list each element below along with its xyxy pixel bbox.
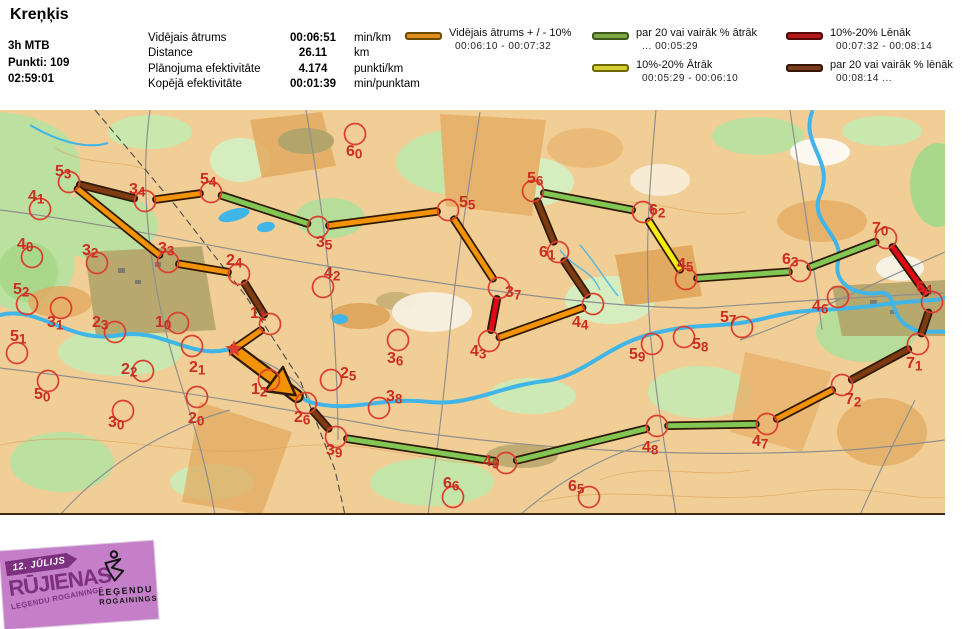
route-map-svg: 5341345433244032523123105121225030201211…: [0, 110, 945, 513]
control-number: 55: [459, 194, 476, 213]
stats-table: Vidējais ātrums 00:06:51 min/km Distance…: [148, 30, 420, 92]
legend-swatch-slow10: [786, 32, 823, 40]
control-number: 71: [906, 355, 923, 374]
control-number: 53: [55, 163, 72, 182]
control-number: 11: [250, 305, 267, 324]
control-number: 39: [326, 442, 342, 461]
total-time: 02:59:01: [8, 71, 69, 88]
legend-range: 00:07:32 - 00:08:14: [830, 40, 932, 53]
stat-unit: punkti/km: [346, 63, 403, 75]
stat-value: 26.11: [280, 47, 346, 59]
stat-row: Plānojuma efektivitāte 4.174 punkti/km: [148, 61, 420, 77]
stat-value: 00:06:51: [280, 32, 346, 44]
route-map: 5341345433244032523123105121225030201211…: [0, 110, 945, 515]
participant-info: 3h MTB Punkti: 109 02:59:01: [8, 38, 69, 88]
stat-row: Vidējais ātrums 00:06:51 min/km: [148, 30, 420, 46]
stat-label: Vidējais ātrums: [148, 32, 280, 44]
stat-row: Distance 26.11 km: [148, 46, 420, 62]
stat-unit: km: [346, 47, 369, 59]
legend-label: Vidējais ātrums + / - 10%: [449, 27, 571, 39]
control-number: 60: [346, 143, 362, 162]
points-total: Punkti: 109: [8, 55, 69, 72]
control-number: 33: [158, 240, 175, 259]
legend-label: 10%-20% Ātrāk: [636, 59, 712, 71]
legend-item-fast10: 10%-20% Ātrāk 00:05:29 - 00:06:10: [592, 59, 738, 85]
control-number: 12: [251, 381, 267, 400]
control-number: 66: [443, 475, 460, 494]
control-number: 22: [121, 361, 137, 380]
control-number: 49: [483, 453, 499, 472]
legend-swatch-slow20: [786, 64, 823, 72]
stat-unit: min/km: [346, 32, 391, 44]
control-number: 30: [108, 414, 124, 433]
stat-label: Plānojuma efektivitāte: [148, 63, 280, 75]
stat-label: Distance: [148, 47, 280, 59]
control-number: 46: [812, 298, 829, 317]
control-number: 52: [13, 281, 29, 300]
control-number: 45: [677, 256, 694, 275]
control-number: 41: [28, 188, 45, 207]
legend-item-slow20: par 20 vai vairāk % lēnāk 00:08:14 ...: [786, 59, 953, 85]
control-number: 63: [782, 251, 799, 270]
legend-label: 10%-20% Lēnāk: [830, 27, 911, 39]
control-number: 34: [129, 181, 146, 200]
legend-range: 00:05:29 - 00:06:10: [636, 72, 738, 85]
event-logo: 12. JŪLIJS RŪJIENAS LEĢENDU ROGAININGS L…: [0, 541, 159, 629]
map-decor: [0, 110, 945, 513]
control-number: 70: [872, 220, 888, 239]
stat-value: 00:01:39: [280, 78, 346, 90]
control-number: 57: [720, 309, 736, 328]
stat-value: 4.174: [280, 63, 346, 75]
control-number: 51: [10, 328, 27, 347]
control-number: 56: [527, 170, 544, 189]
page-title: Kreņķis: [10, 6, 69, 24]
legend-range: 00:06:10 - 00:07:32: [449, 40, 571, 53]
control-number: 47: [752, 433, 768, 452]
control-number: 65: [568, 478, 585, 497]
control-number: 24: [226, 252, 243, 271]
control-number: 21: [189, 359, 206, 378]
control-number: 23: [92, 314, 109, 333]
class-name: 3h MTB: [8, 38, 69, 55]
control-number: 37: [505, 284, 521, 303]
legend-item-average: Vidējais ātrums + / - 10% 00:06:10 - 00:…: [405, 27, 571, 53]
event-brand: LEĢENDU ROGAININGS: [96, 547, 154, 607]
legend-label: par 20 vai vairāk % lēnāk: [830, 59, 953, 71]
control-number: 40: [17, 236, 33, 255]
legend-swatch-fast20: [592, 32, 629, 40]
stat-label: Kopējā efektivitāte: [148, 78, 280, 90]
control-number: 42: [324, 265, 340, 284]
control-number: 35: [316, 234, 333, 253]
control-number: 43: [470, 343, 487, 362]
control-number: 32: [82, 242, 98, 261]
stat-row: Kopējā efektivitāte 00:01:39 min/punktam: [148, 77, 420, 93]
legend-item-slow10: 10%-20% Lēnāk 00:07:32 - 00:08:14: [786, 27, 932, 53]
event-logo-left: 12. JŪLIJS RŪJIENAS LEĢENDU ROGAININGS: [4, 545, 106, 609]
control-number: 58: [692, 336, 709, 355]
control-number: 54: [200, 171, 217, 190]
legend-swatch-fast10: [592, 64, 629, 72]
control-number: 26: [294, 409, 311, 428]
control-number: 31: [47, 314, 64, 333]
control-number: 10: [155, 314, 171, 333]
legend-range: 00:08:14 ...: [830, 72, 953, 85]
control-number: 72: [845, 391, 861, 410]
control-number: 48: [642, 439, 659, 458]
control-number: 50: [34, 386, 50, 405]
control-number: 38: [386, 388, 403, 407]
control-number: 61: [539, 244, 556, 263]
control-number: 64: [916, 279, 933, 298]
report-header: Kreņķis 3h MTB Punkti: 109 02:59:01 Vidē…: [0, 0, 968, 110]
rogaining-logo-icon: [96, 548, 132, 586]
legend-label: par 20 vai vairāk % ātrāk: [636, 27, 757, 39]
legend-range: ... 00:05:29: [636, 40, 757, 53]
stat-unit: min/punktam: [346, 78, 420, 90]
legend-item-fast20: par 20 vai vairāk % ātrāk ... 00:05:29: [592, 27, 757, 53]
control-number: 25: [340, 365, 357, 384]
control-number: 59: [629, 346, 645, 365]
control-number: 20: [188, 410, 204, 429]
control-number: 44: [572, 314, 589, 333]
legend-swatch-average: [405, 32, 442, 40]
control-number: 36: [387, 350, 404, 369]
control-number: 62: [649, 202, 665, 221]
